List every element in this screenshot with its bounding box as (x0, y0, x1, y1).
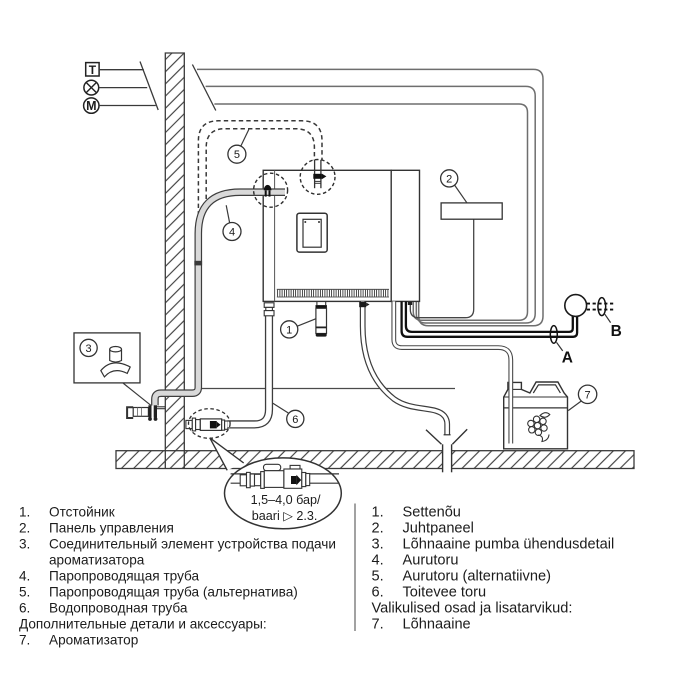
svg-text:5.: 5. (19, 585, 30, 600)
svg-text:7.: 7. (19, 633, 30, 648)
svg-text:4.: 4. (372, 553, 384, 569)
svg-text:3.: 3. (19, 537, 30, 552)
svg-text:ароматизатора: ароматизатора (49, 553, 145, 568)
svg-text:3: 3 (86, 343, 92, 355)
svg-text:Паропроводящая труба (альтерна: Паропроводящая труба (альтернатива) (49, 585, 298, 600)
svg-text:Соединительный элемент устройс: Соединительный элемент устройства подачи (49, 537, 336, 552)
svg-text:1,5–4,0 бар/: 1,5–4,0 бар/ (251, 493, 321, 507)
svg-text:Toitevee toru: Toitevee toru (403, 585, 487, 601)
svg-text:Отстойник: Отстойник (49, 505, 116, 520)
svg-text:1.: 1. (19, 505, 30, 520)
svg-text:B: B (611, 323, 622, 340)
svg-text:Паропроводящая труба: Паропроводящая труба (49, 569, 199, 584)
svg-text:4.: 4. (19, 569, 30, 584)
svg-text:A: A (562, 350, 573, 367)
svg-text:Панель управления: Панель управления (49, 521, 174, 536)
svg-text:Дополнительные детали и аксесс: Дополнительные детали и аксессуары: (19, 617, 267, 632)
svg-text:M: M (86, 99, 96, 113)
svg-text:Settenõu: Settenõu (403, 505, 461, 521)
svg-text:Aurutoru (alternatiivne): Aurutoru (alternatiivne) (403, 569, 551, 585)
svg-text:Ароматизатор: Ароматизатор (49, 633, 138, 648)
svg-text:Aurutoru: Aurutoru (403, 553, 459, 569)
svg-text:1.: 1. (372, 505, 384, 521)
svg-text:2: 2 (446, 173, 452, 185)
svg-text:5.: 5. (372, 569, 384, 585)
svg-text:Juhtpaneel: Juhtpaneel (403, 521, 474, 537)
svg-text:2.: 2. (19, 521, 30, 536)
svg-text:Valikulised osad ja lisatarvik: Valikulised osad ja lisatarvikud: (372, 601, 573, 617)
svg-text:6.: 6. (19, 601, 30, 616)
svg-text:4: 4 (229, 227, 235, 239)
svg-text:1: 1 (286, 324, 292, 336)
svg-text:5: 5 (234, 149, 240, 161)
svg-text:Водопроводная труба: Водопроводная труба (49, 601, 188, 616)
svg-text:6.: 6. (372, 585, 384, 601)
svg-text:Lõhnaaine: Lõhnaaine (403, 617, 471, 633)
svg-text:baari ▷ 2.3.: baari ▷ 2.3. (252, 509, 318, 523)
svg-text:Lõhnaaine pumba ühendusdetail: Lõhnaaine pumba ühendusdetail (403, 537, 615, 553)
svg-text:7: 7 (585, 389, 591, 401)
svg-text:3.: 3. (372, 537, 384, 553)
svg-text:7.: 7. (372, 617, 384, 633)
svg-text:2.: 2. (372, 521, 384, 537)
svg-text:T: T (89, 63, 97, 77)
svg-text:6: 6 (292, 414, 298, 426)
